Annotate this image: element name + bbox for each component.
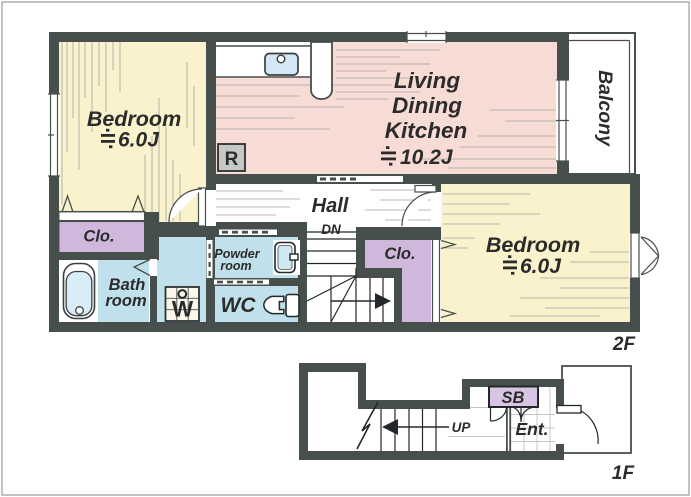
svg-text:6.0J: 6.0J [118,129,160,152]
svg-text:10.2J: 10.2J [400,146,454,169]
svg-text:W: W [172,297,194,322]
svg-text:Clo.: Clo. [384,245,415,263]
svg-text:room: room [105,292,146,310]
svg-text:SB: SB [502,389,525,407]
svg-text:2F: 2F [612,334,637,355]
svg-text:Clo.: Clo. [83,228,114,246]
svg-text:Living: Living [394,68,461,93]
svg-text:6.0J: 6.0J [520,255,562,278]
svg-text:UP: UP [452,420,472,435]
svg-text:1F: 1F [612,463,636,484]
svg-text:Bedroom: Bedroom [486,233,580,257]
svg-text:Balcony: Balcony [594,70,616,147]
svg-text:Kitchen: Kitchen [385,118,468,143]
svg-text:DN: DN [321,222,341,237]
svg-text:R: R [225,149,239,170]
svg-text:Dining: Dining [392,93,462,118]
svg-text:WC: WC [221,294,257,317]
svg-text:Ent.: Ent. [515,419,548,439]
svg-text:room: room [220,259,251,273]
svg-text:Hall: Hall [312,195,349,217]
svg-text:Bedroom: Bedroom [87,107,181,131]
